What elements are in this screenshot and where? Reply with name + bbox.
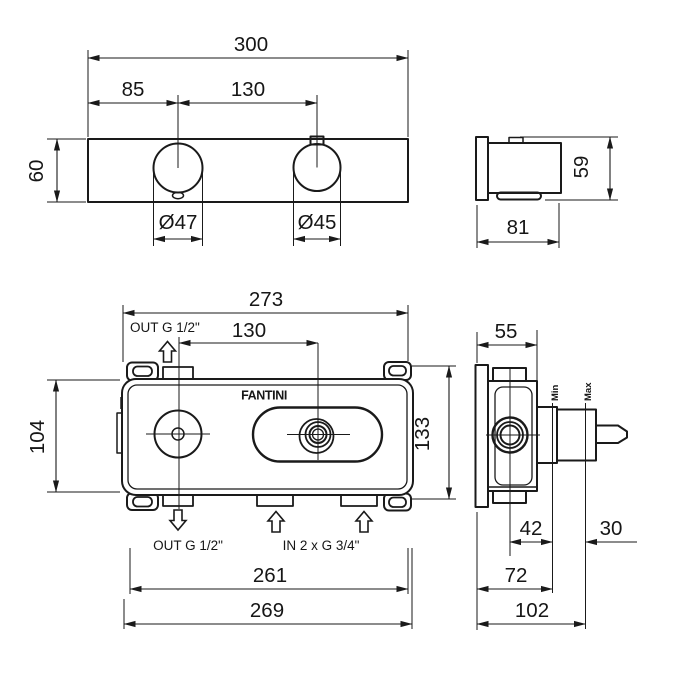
dim-label-60: 60 xyxy=(25,160,48,183)
dim-label-130-rough: 130 xyxy=(232,319,266,342)
dim-102: 102 xyxy=(477,599,586,624)
dim-133: 133 xyxy=(411,366,456,499)
max-label: Max xyxy=(583,382,594,401)
dim-label-30: 30 xyxy=(600,517,623,540)
dim-label-273: 273 xyxy=(249,288,283,311)
dim-label-104: 104 xyxy=(26,420,49,454)
front-view: 300 85 130 60 Ø47 Ø45 xyxy=(25,33,408,246)
knob-body-side xyxy=(488,143,561,193)
dim-130-front: 130 xyxy=(178,78,317,103)
dim-label-dia47: Ø47 xyxy=(159,211,198,234)
trim-plate xyxy=(88,139,408,202)
wall-plate-side xyxy=(476,137,488,200)
cartridge-stem xyxy=(596,426,627,444)
dim-label-269: 269 xyxy=(250,599,284,622)
arrow-up-inlet-left-icon xyxy=(268,512,284,533)
dim-label-130: 130 xyxy=(231,78,265,101)
brand-logo: FANTINI xyxy=(241,389,287,403)
dim-42: 42 xyxy=(510,517,553,542)
dim-30: 30 xyxy=(586,517,638,542)
dim-60: 60 xyxy=(25,139,86,202)
dim-dia47: Ø47 xyxy=(154,172,203,246)
dim-55: 55 xyxy=(477,320,537,405)
arrow-up-inlet-right-icon xyxy=(356,512,372,533)
dim-261: 261 xyxy=(130,548,408,594)
dim-label-42: 42 xyxy=(520,517,543,540)
drawing-canvas: 300 85 130 60 Ø47 Ø45 xyxy=(0,0,700,700)
dim-130-rough: 130 xyxy=(179,319,318,343)
dim-label-102: 102 xyxy=(515,599,549,622)
dim-85: 85 xyxy=(88,78,178,103)
dim-label-261: 261 xyxy=(253,564,287,587)
out-top-label: OUT G 1/2" xyxy=(130,320,200,335)
wall-plate-rough-side xyxy=(476,365,489,507)
dim-81: 81 xyxy=(477,203,559,248)
dim-label-72: 72 xyxy=(505,564,528,587)
dim-label-85: 85 xyxy=(122,78,145,101)
technical-drawing-sheet: 300 85 130 60 Ø47 Ø45 xyxy=(0,0,700,700)
arrow-up-out-top-icon xyxy=(160,342,176,363)
dim-label-81: 81 xyxy=(507,216,530,239)
min-label: Min xyxy=(550,384,561,401)
dim-59: 59 xyxy=(520,137,618,200)
dim-label-133: 133 xyxy=(411,417,434,451)
dim-label-300: 300 xyxy=(234,33,268,56)
dim-104: 104 xyxy=(26,380,120,492)
dim-label-55: 55 xyxy=(495,320,518,343)
out-bottom-label: OUT G 1/2" xyxy=(153,538,223,553)
dim-label-dia45: Ø45 xyxy=(298,211,337,234)
rough-in-side-view: Min Max 55 42 30 72 102 xyxy=(476,320,638,630)
rough-in-front-view: FANTINI OUT G 1/2" OUT G 1/2" IN 2 x G 3… xyxy=(26,288,456,629)
arrow-down-out-bottom-icon xyxy=(170,510,186,530)
side-view: 59 81 xyxy=(476,137,618,248)
cartridge-sleeve xyxy=(557,410,596,461)
inlet-label: IN 2 x G 3/4" xyxy=(283,538,360,553)
dim-label-59: 59 xyxy=(570,156,593,179)
